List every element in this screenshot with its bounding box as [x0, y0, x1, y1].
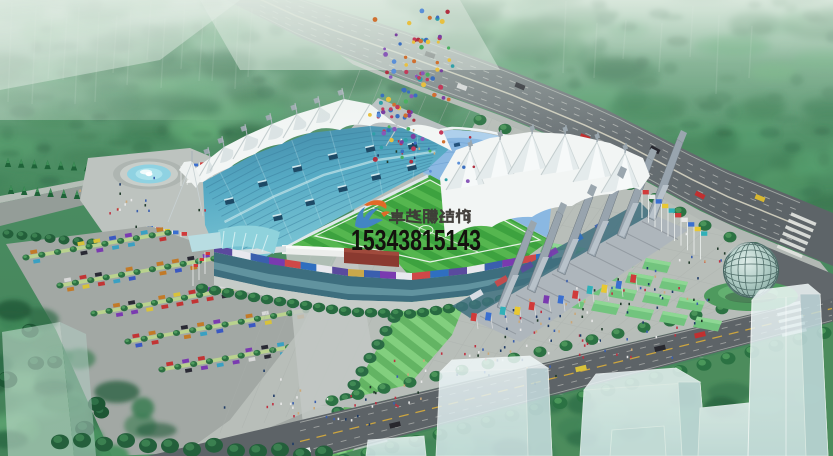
- svg-text:15343815143: 15343815143: [351, 225, 481, 257]
